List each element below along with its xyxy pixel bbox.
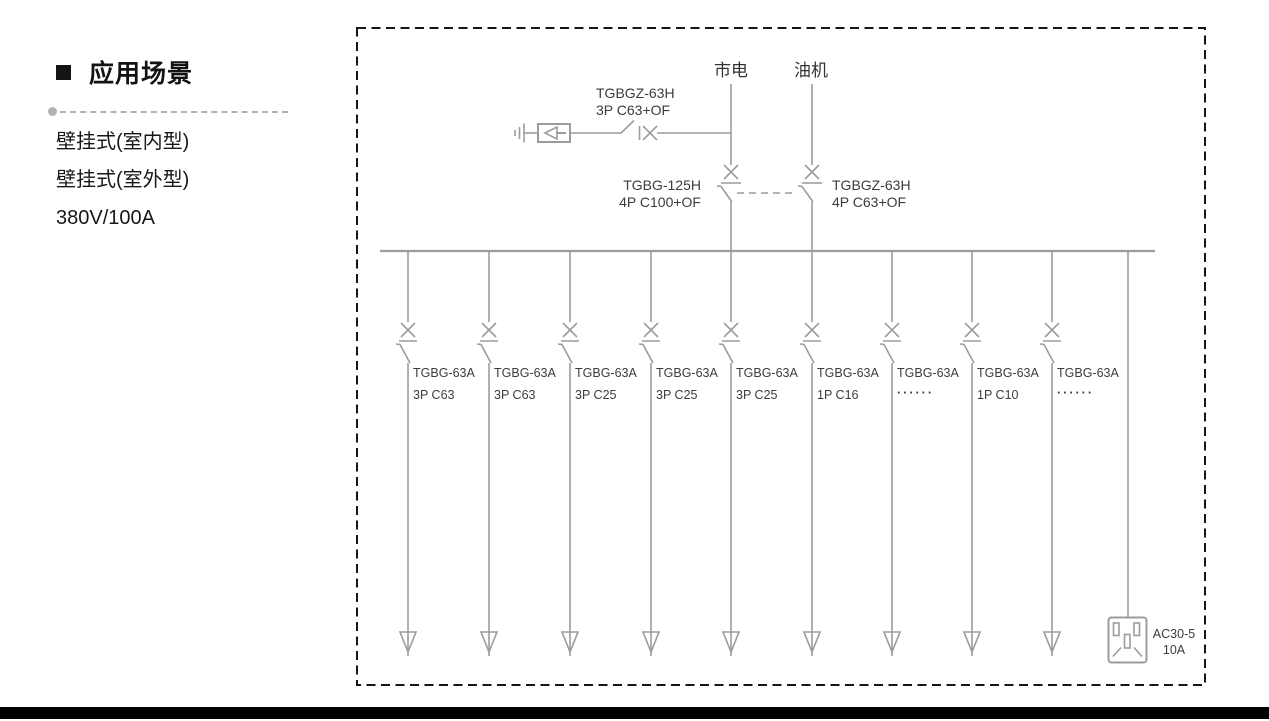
- svg-text:4P C63+OF: 4P C63+OF: [832, 194, 906, 210]
- feeder-spec-label: ······: [897, 386, 934, 400]
- feeder-model-label: TGBG-63A: [656, 366, 718, 380]
- generator-breaker-label: TGBGZ-63H 4P C63+OF: [832, 177, 911, 210]
- feeder-breaker-icon-5: [719, 251, 740, 656]
- feeder-model-label: TGBG-63A: [977, 366, 1039, 380]
- feeder-spec-label: 3P C25: [656, 388, 698, 402]
- feeder-model-label: TGBG-63A: [817, 366, 879, 380]
- feeder-spec-label: 3P C63: [413, 388, 455, 402]
- socket-label: AC30-5 10A: [1153, 627, 1195, 657]
- svg-text:4P C100+OF: 4P C100+OF: [619, 194, 701, 210]
- surge-arrester-icon: [538, 124, 570, 142]
- feeder-model-label: TGBG-63A: [413, 366, 475, 380]
- feeder-breaker-icon-8: [960, 251, 981, 656]
- feeder-spec-label: 1P C16: [817, 388, 859, 402]
- feeder-model-label: TGBG-63A: [736, 366, 798, 380]
- feeder-model-label: TGBG-63A: [494, 366, 556, 380]
- svg-text:TGBGZ-63H: TGBGZ-63H: [596, 85, 675, 101]
- feeder-spec-label: 3P C63: [494, 388, 536, 402]
- feeder-spec-label: 3P C25: [575, 388, 617, 402]
- svg-text:TGBG-125H: TGBG-125H: [623, 177, 701, 193]
- feeder-breaker-icon-7: [880, 251, 901, 656]
- feeder-spec-label: 3P C25: [736, 388, 778, 402]
- feeder-model-label: TGBG-63A: [575, 366, 637, 380]
- feeder-breaker-icon-3: [558, 251, 579, 656]
- mains-source-label: 市电: [714, 61, 748, 80]
- spd-breaker-icon: [621, 121, 731, 141]
- spd-breaker-label: TGBGZ-63H 3P C63+OF: [596, 85, 675, 118]
- feeder-breaker-icon-2: [477, 251, 498, 656]
- feeder-breaker-icon-4: [639, 251, 660, 656]
- feeder-breaker-icon-1: [396, 251, 417, 656]
- earth-ground-icon: [515, 124, 524, 143]
- generator-source-label: 油机: [794, 61, 828, 80]
- bottom-rule: [0, 707, 1269, 719]
- svg-text:3P C63+OF: 3P C63+OF: [596, 102, 670, 118]
- feeder-model-label: TGBG-63A: [1057, 366, 1119, 380]
- page: 应用场景 壁挂式(室内型) 壁挂式(室外型) 380V/100A: [0, 0, 1269, 721]
- svg-text:TGBGZ-63H: TGBGZ-63H: [832, 177, 911, 193]
- feeder-labels: TGBG-63A 3P C63 TGBG-63A 3P C63 TGBG-63A…: [413, 366, 1119, 402]
- feeder-model-label: TGBG-63A: [897, 366, 959, 380]
- diagram-dashed-border: [357, 28, 1205, 685]
- mains-breaker-label: TGBG-125H 4P C100+OF: [619, 177, 701, 210]
- feeder-spec-label: 1P C10: [977, 388, 1019, 402]
- svg-text:10A: 10A: [1163, 643, 1186, 657]
- generator-breaker-icon: [798, 84, 822, 251]
- feeder-breaker-icon-6: [800, 251, 821, 656]
- mains-breaker-icon: [717, 84, 741, 251]
- svg-text:AC30-5: AC30-5: [1153, 627, 1195, 641]
- feeder-breaker-icon-9: [1040, 251, 1061, 656]
- single-line-diagram: 市电 油机 TGBGZ-63H 3P C63+OF TGBG-125H 4P C…: [0, 0, 1269, 721]
- feeder-spec-label: ······: [1057, 386, 1094, 400]
- socket-icon: [1109, 618, 1147, 663]
